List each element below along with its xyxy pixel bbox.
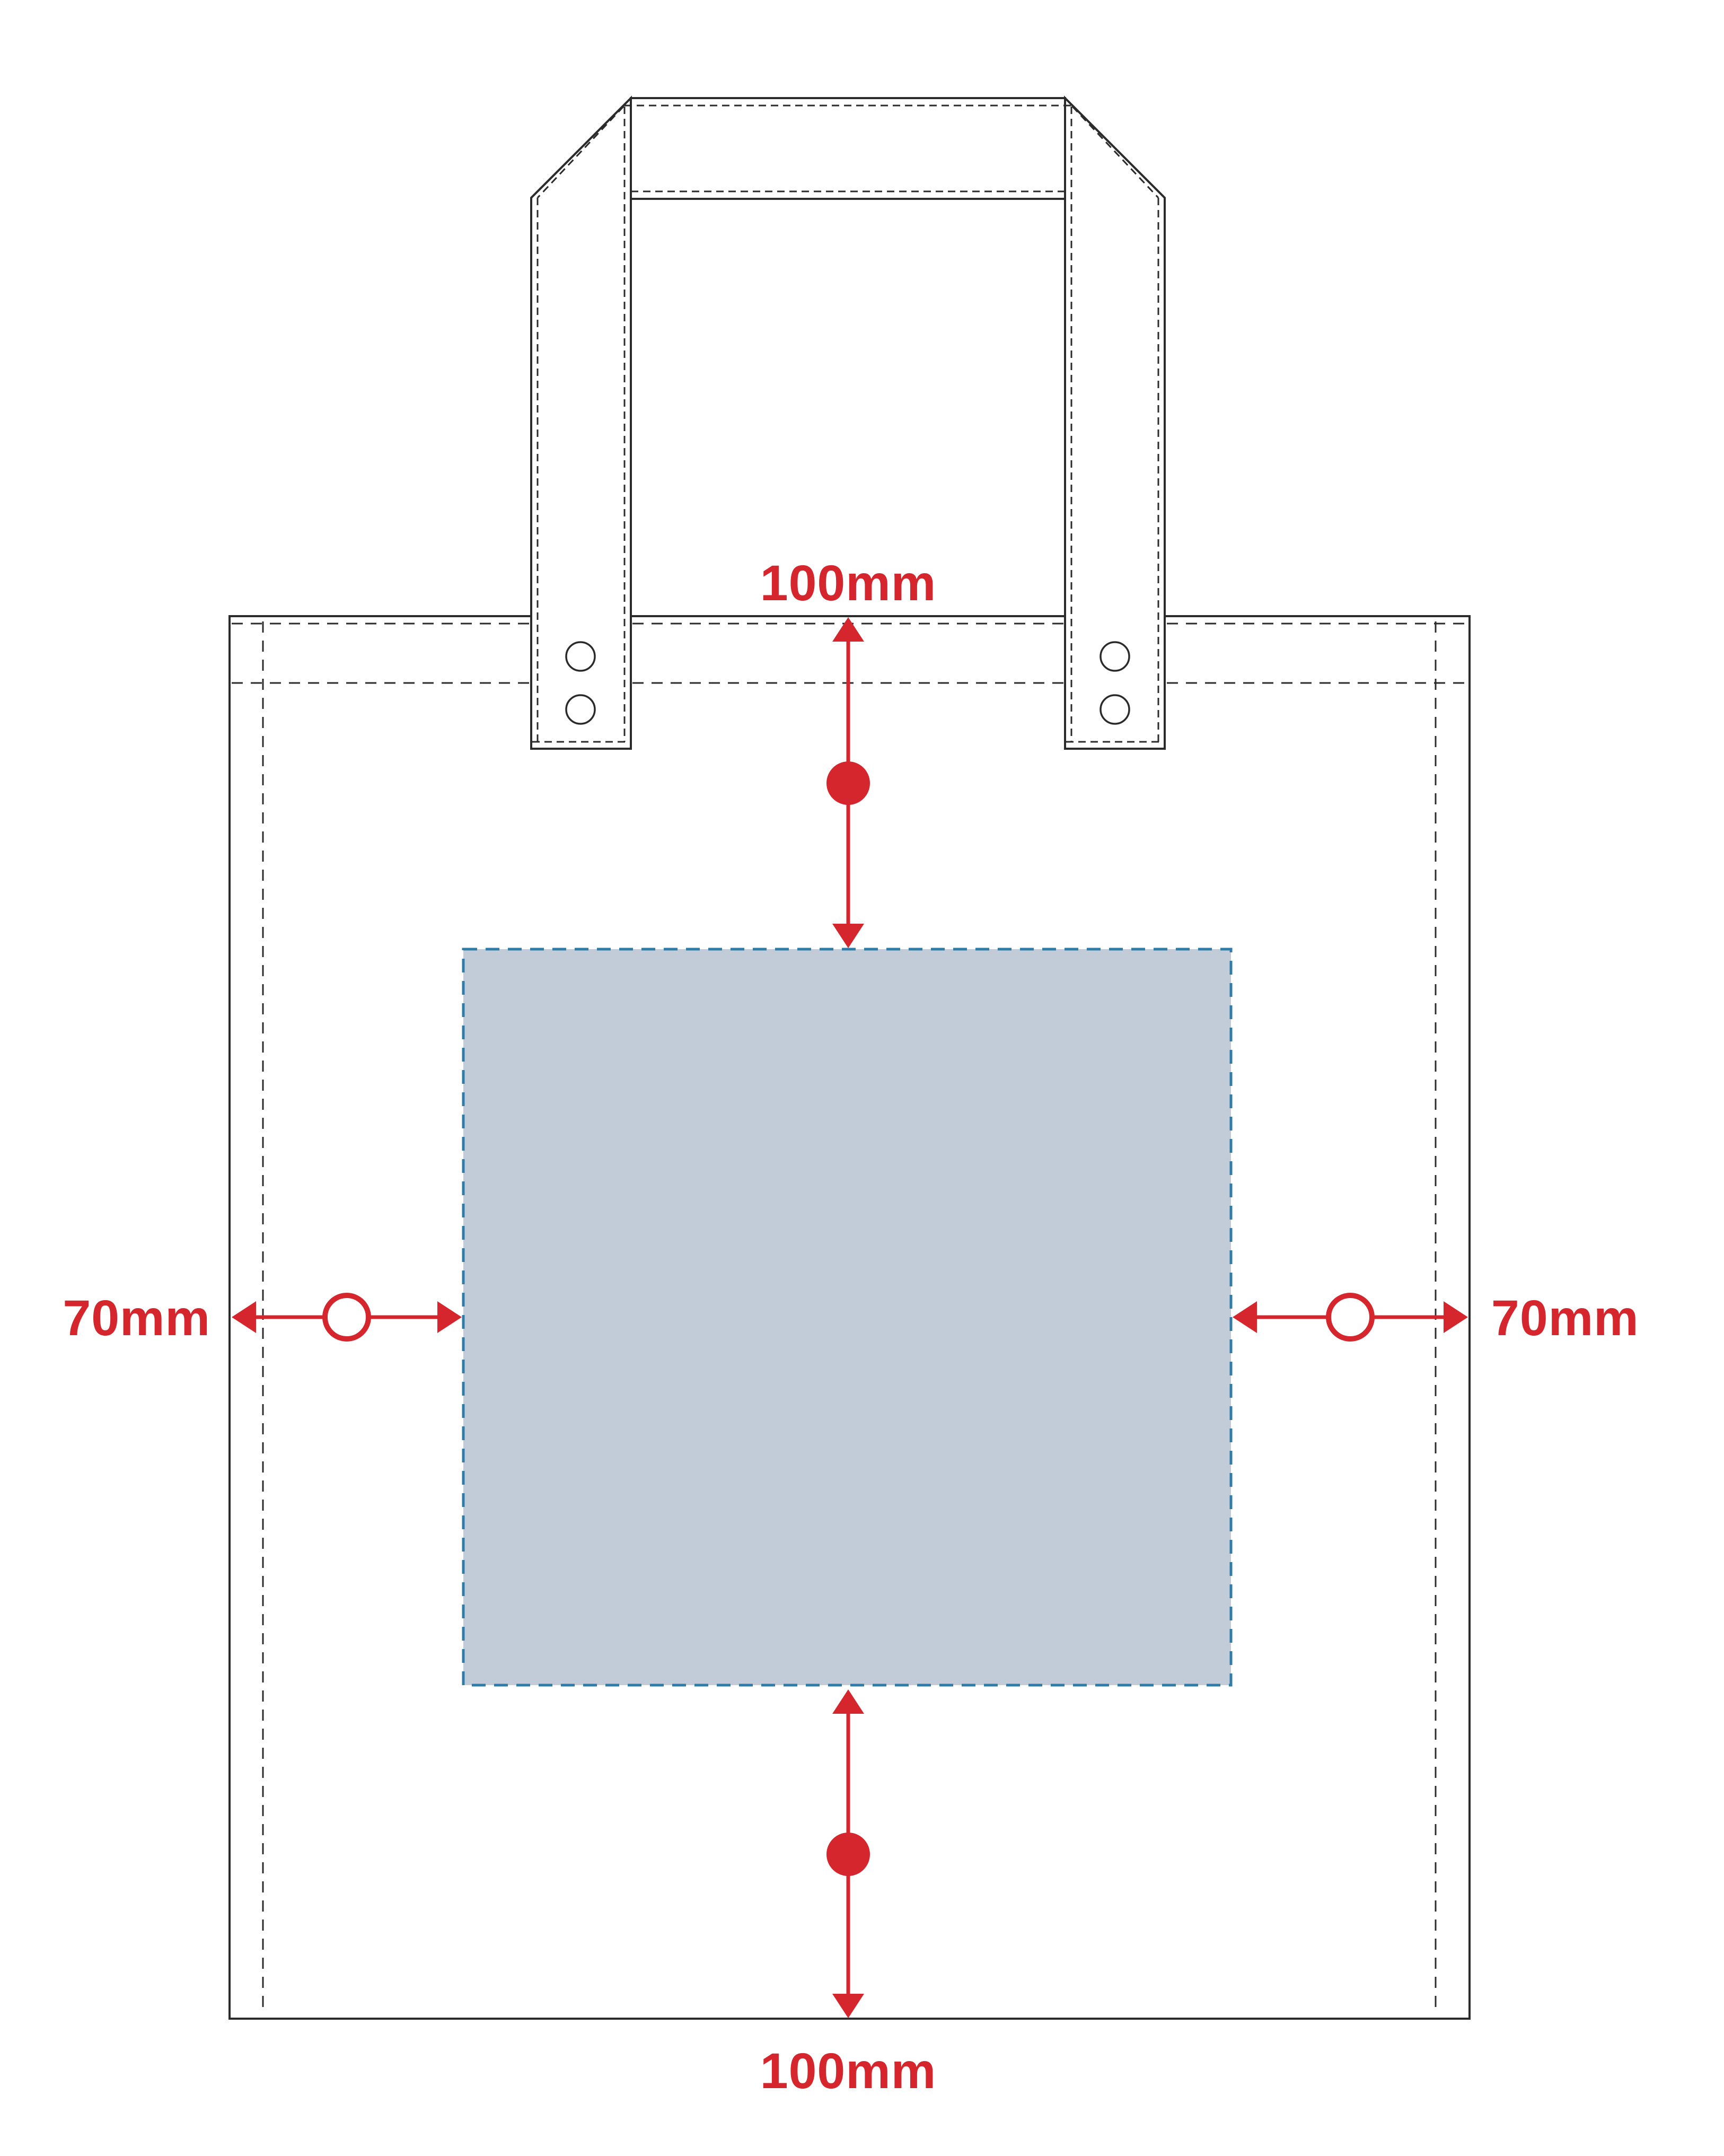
dimension-label-left: 70mm xyxy=(63,1290,210,1346)
rivet-circle xyxy=(566,695,595,724)
hollow-dot-icon xyxy=(325,1295,368,1339)
rivet-circle xyxy=(566,642,595,671)
dimension-label-top: 100mm xyxy=(760,555,936,611)
print-area xyxy=(463,949,1231,1685)
handle-top-bar xyxy=(631,98,1065,199)
filled-dot-icon xyxy=(826,1833,870,1876)
filled-dot-icon xyxy=(826,761,870,805)
dimension-label-bottom: 100mm xyxy=(760,2043,936,2099)
dimension-label-right: 70mm xyxy=(1491,1290,1639,1346)
tote-bag-print-area-diagram: 100mm 100mm 70mm 70mm xyxy=(0,0,1724,2156)
rivet-circle xyxy=(1101,642,1129,671)
rivet-circle xyxy=(1101,695,1129,724)
hollow-dot-icon xyxy=(1329,1295,1372,1339)
